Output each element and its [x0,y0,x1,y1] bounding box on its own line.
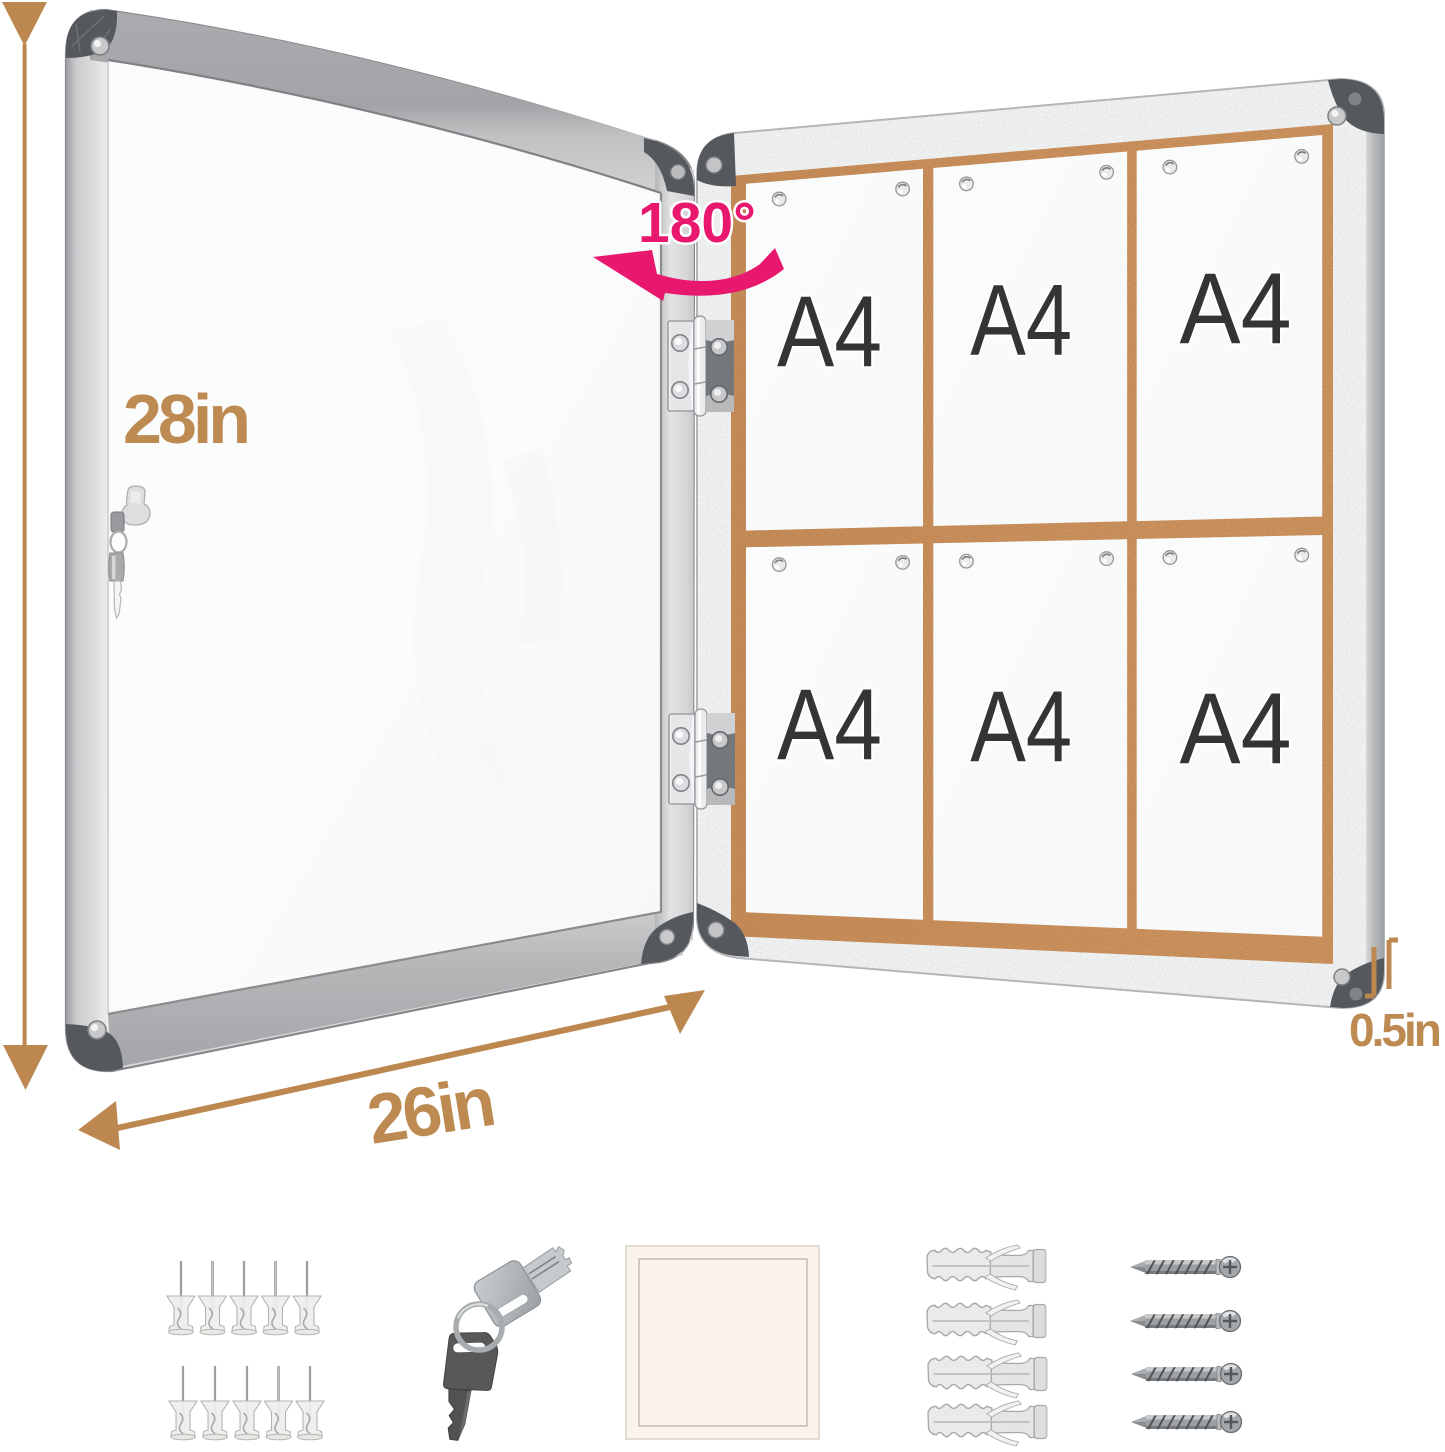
svg-text:180°: 180° [638,191,756,255]
svg-text:0.5in: 0.5in [1349,1004,1440,1056]
svg-text:28in: 28in [123,380,247,458]
svg-text:A4: A4 [777,670,882,782]
svg-text:A4: A4 [777,276,882,388]
svg-text:A4: A4 [970,265,1072,377]
svg-text:A4: A4 [1180,253,1292,365]
svg-text:A4: A4 [1180,674,1292,786]
svg-text:A4: A4 [970,672,1072,784]
